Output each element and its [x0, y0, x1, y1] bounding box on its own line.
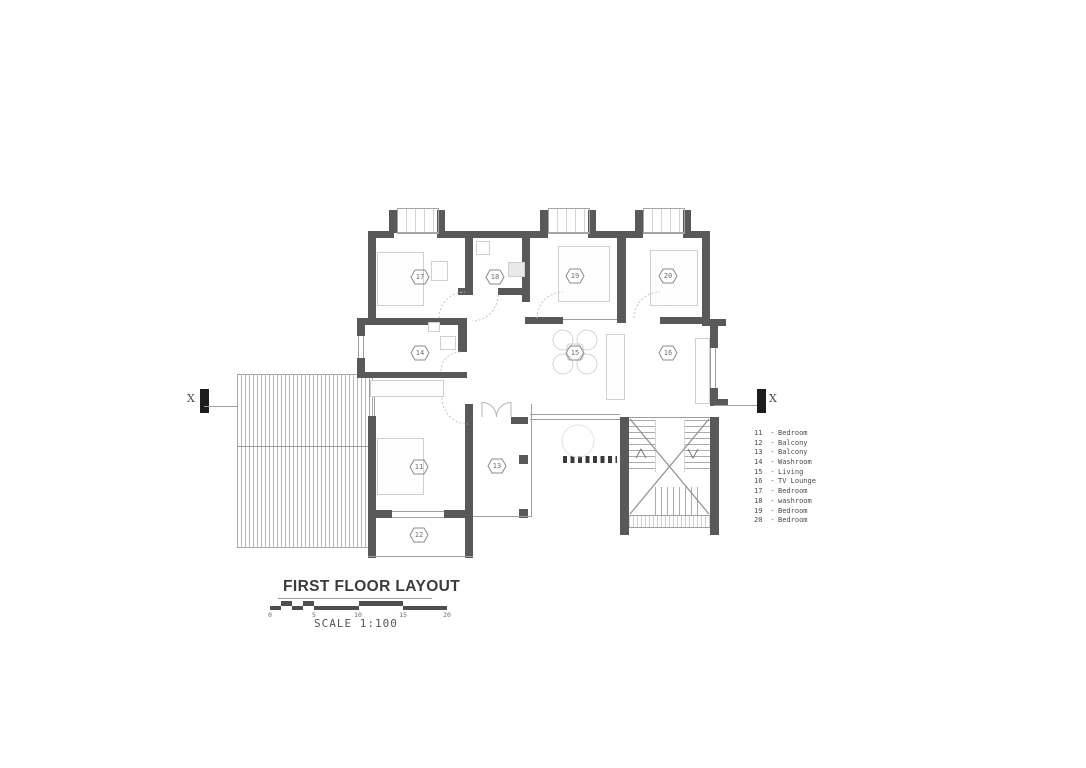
- door-arc: [439, 292, 465, 318]
- french-door-arc: [497, 403, 512, 418]
- legend-num: 16: [754, 477, 767, 487]
- legend-num: 18: [754, 497, 767, 507]
- legend-num: 12: [754, 439, 767, 449]
- room-number: 20: [658, 269, 678, 283]
- section-label-right: X: [769, 392, 777, 405]
- legend-sep: -: [767, 468, 778, 478]
- legend-name: washroom: [778, 497, 812, 507]
- room-marker-15: 15: [565, 345, 585, 361]
- legend-row: 19 - Bedroom: [754, 507, 816, 517]
- room-marker-14: 14: [410, 345, 430, 361]
- legend-name: Bedroom: [778, 429, 808, 439]
- room-marker-16: 16: [658, 345, 678, 361]
- room-legend: 11 - Bedroom 12 - Balcony 13 - Balcony 1…: [754, 429, 816, 526]
- legend-name: Bedroom: [778, 516, 808, 526]
- legend-sep: -: [767, 477, 778, 487]
- legend-name: Living: [778, 468, 803, 478]
- legend-num: 14: [754, 458, 767, 468]
- scale-bar-segment: [359, 601, 403, 606]
- stair-cross: [630, 419, 709, 514]
- section-label-left: X: [187, 392, 195, 405]
- legend-row: 20 - Bedroom: [754, 516, 816, 526]
- legend-name: Washroom: [778, 458, 812, 468]
- legend-row: 15 - Living: [754, 468, 816, 478]
- legend-sep: -: [767, 487, 778, 497]
- title-underline: [278, 598, 432, 599]
- door-arc: [441, 352, 460, 371]
- legend-num: 17: [754, 487, 767, 497]
- room-marker-13: 13: [487, 458, 507, 474]
- floor-plan-sheet: 17 18 19 20 14 15 16 11 13 12 X X: [0, 0, 1086, 768]
- room-marker-12: 12: [409, 527, 429, 543]
- legend-num: 13: [754, 448, 767, 458]
- door-arc: [472, 295, 498, 321]
- legend-name: Balcony: [778, 448, 808, 458]
- legend-sep: -: [767, 497, 778, 507]
- scale-bar-segment: [281, 601, 292, 606]
- legend-row: 14 - Washroom: [754, 458, 816, 468]
- legend-row: 13 - Balcony: [754, 448, 816, 458]
- legend-num: 19: [754, 507, 767, 517]
- section-line-right: [714, 405, 758, 406]
- room-number: 19: [565, 269, 585, 283]
- room-number: 16: [658, 346, 678, 360]
- plan-details-overlay: [0, 0, 1086, 768]
- legend-sep: -: [767, 458, 778, 468]
- section-bar-left: [200, 389, 209, 413]
- legend-sep: -: [767, 439, 778, 449]
- legend-name: Balcony: [778, 439, 808, 449]
- scale-tick: 20: [443, 611, 451, 619]
- room-number: 11: [409, 460, 429, 474]
- section-line-left: [204, 406, 238, 407]
- legend-num: 15: [754, 468, 767, 478]
- legend-row: 17 - Bedroom: [754, 487, 816, 497]
- room-number: 12: [409, 528, 429, 542]
- room-marker-19: 19: [565, 268, 585, 284]
- section-bar-right: [757, 389, 766, 413]
- legend-sep: -: [767, 507, 778, 517]
- room-number: 15: [565, 346, 585, 360]
- door-arc: [442, 398, 468, 424]
- scale-bar-segment: [403, 606, 447, 611]
- scale-label: SCALE 1:100: [314, 617, 398, 630]
- room-number: 17: [410, 270, 430, 284]
- room-marker-17: 17: [410, 269, 430, 285]
- legend-sep: -: [767, 429, 778, 439]
- legend-num: 11: [754, 429, 767, 439]
- void-circle: [562, 425, 594, 457]
- room-marker-20: 20: [658, 268, 678, 284]
- room-marker-11: 11: [409, 459, 429, 475]
- room-number: 14: [410, 346, 430, 360]
- scale-bar-segment: [314, 606, 358, 611]
- room-number: 18: [485, 270, 505, 284]
- scale-tick: 0: [268, 611, 272, 619]
- french-door-arc: [482, 403, 497, 418]
- drawing-title: FIRST FLOOR LAYOUT: [283, 578, 460, 596]
- legend-sep: -: [767, 516, 778, 526]
- legend-row: 16 - TV Lounge: [754, 477, 816, 487]
- legend-sep: -: [767, 448, 778, 458]
- stair-arrow-down: [688, 449, 698, 458]
- legend-row: 18 - washroom: [754, 497, 816, 507]
- legend-name: Bedroom: [778, 507, 808, 517]
- room-marker-18: 18: [485, 269, 505, 285]
- legend-name: TV Lounge: [778, 477, 816, 487]
- door-arc: [537, 292, 563, 318]
- scale-bar-segment: [292, 606, 303, 611]
- legend-name: Bedroom: [778, 487, 808, 497]
- scale-bar: [270, 601, 447, 610]
- room-number: 13: [487, 459, 507, 473]
- scale-tick: 15: [399, 611, 407, 619]
- legend-num: 20: [754, 516, 767, 526]
- legend-row: 11 - Bedroom: [754, 429, 816, 439]
- legend-row: 12 - Balcony: [754, 439, 816, 449]
- scale-bar-segment: [270, 606, 281, 611]
- scale-bar-segment: [303, 601, 314, 606]
- door-arc: [634, 292, 660, 318]
- stair-arrow-up: [636, 449, 646, 458]
